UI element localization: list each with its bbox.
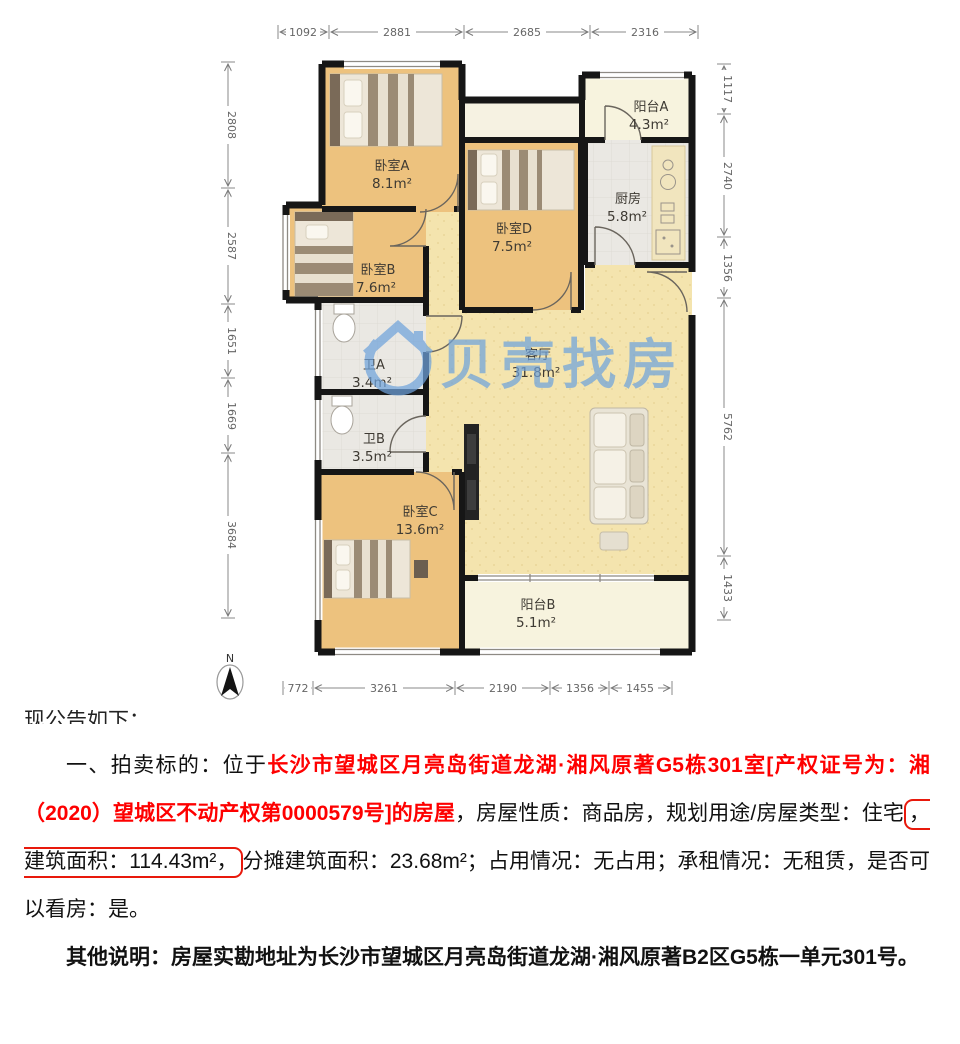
floorplan-image: 卧室A 8.1m² 卧室B 7.6m² 卧室C 13.6m² 卧室D 7.5m²… bbox=[0, 0, 960, 706]
toilet-bath-b bbox=[331, 396, 353, 434]
window-bedroom-c-left bbox=[314, 520, 323, 620]
p1-lead: 一、拍卖标的：位于 bbox=[66, 754, 267, 777]
window-bath-b bbox=[314, 400, 323, 460]
beike-watermark-text: 贝壳找房 bbox=[440, 333, 684, 396]
tv-unit bbox=[464, 424, 479, 520]
clipped-text-line: 现公告如下： bbox=[24, 710, 960, 724]
label-balcony-b: 阳台B bbox=[521, 598, 556, 613]
area-bedroom-a: 8.1m² bbox=[372, 176, 412, 192]
area-bedroom-c: 13.6m² bbox=[396, 522, 445, 538]
dim-bottom-1: 3261 bbox=[370, 682, 398, 695]
window-bedroom-a bbox=[344, 59, 440, 69]
dim-bottom-3: 1356 bbox=[566, 682, 594, 695]
dim-top-3: 2316 bbox=[631, 26, 659, 39]
window-balcony-b-bottom bbox=[480, 648, 660, 657]
bed-b bbox=[295, 212, 353, 296]
label-bath-b: 卫B bbox=[363, 432, 385, 447]
dim-right-2: 1356 bbox=[721, 254, 734, 282]
clipped-text: 现公告如下： bbox=[24, 710, 150, 724]
kitchen-counter bbox=[652, 146, 685, 260]
dim-right-0: 1117 bbox=[721, 75, 734, 103]
label-bedroom-c: 卧室C bbox=[402, 504, 437, 520]
north-arrow: N bbox=[217, 652, 243, 699]
dim-left-3: 1669 bbox=[225, 402, 238, 430]
window-bath-a bbox=[314, 310, 323, 376]
area-bedroom-d: 7.5m² bbox=[492, 239, 532, 255]
auction-description: 一、拍卖标的：位于长沙市望城区月亮岛街道龙湖·湘风原著G5栋301室[产权证号为… bbox=[0, 742, 960, 982]
dim-bottom-2: 2190 bbox=[489, 682, 517, 695]
label-kitchen: 厨房 bbox=[615, 191, 641, 207]
dim-top-1: 2881 bbox=[383, 26, 411, 39]
label-balcony-a: 阳台A bbox=[634, 100, 669, 115]
north-label: N bbox=[226, 652, 234, 665]
dim-right-4: 1433 bbox=[721, 574, 734, 602]
dim-bottom-0: 772 bbox=[288, 682, 309, 695]
label-bedroom-d: 卧室D bbox=[496, 221, 532, 237]
window-balcony-a bbox=[600, 71, 684, 80]
area-balcony-b: 5.1m² bbox=[516, 615, 556, 631]
equipment-platform-floor bbox=[462, 100, 582, 140]
window-bedroom-b-bay bbox=[281, 215, 290, 290]
bed-a bbox=[330, 74, 442, 146]
toilet-bath-a bbox=[333, 304, 355, 342]
dim-top-0: 1092 bbox=[289, 26, 317, 39]
auction-paragraph-2: 其他说明：房屋实勘地址为长沙市望城区月亮岛街道龙湖·湘风原著B2区G5栋一单元3… bbox=[24, 934, 930, 982]
dim-right-1: 2740 bbox=[721, 162, 734, 190]
label-bedroom-b: 卧室B bbox=[361, 262, 396, 278]
nightstand-c bbox=[414, 560, 428, 578]
area-balcony-a: 4.3m² bbox=[629, 117, 669, 133]
dim-left-1: 2587 bbox=[225, 232, 238, 260]
window-living-balcony-b bbox=[478, 574, 654, 582]
dim-right-3: 5762 bbox=[721, 413, 734, 441]
p1-mid: ，房屋性质：商品房，规划用途/房屋类型：住宅 bbox=[455, 802, 904, 825]
bed-d bbox=[468, 150, 574, 210]
side-table bbox=[600, 532, 628, 550]
floorplan-svg: 卧室A 8.1m² 卧室B 7.6m² 卧室C 13.6m² 卧室D 7.5m²… bbox=[0, 0, 960, 706]
auction-paragraph-1: 一、拍卖标的：位于长沙市望城区月亮岛街道龙湖·湘风原著G5栋301室[产权证号为… bbox=[24, 742, 930, 934]
room-balcony-b-floor bbox=[462, 578, 692, 652]
dim-bottom-4: 1455 bbox=[626, 682, 654, 695]
area-kitchen: 5.8m² bbox=[607, 209, 647, 225]
dim-left-4: 3684 bbox=[225, 521, 238, 549]
area-bedroom-b: 7.6m² bbox=[356, 280, 396, 296]
dim-left-0: 2808 bbox=[225, 111, 238, 139]
dim-top-2: 2685 bbox=[513, 26, 541, 39]
label-bedroom-a: 卧室A bbox=[375, 158, 410, 174]
window-bedroom-c-bottom bbox=[335, 648, 440, 657]
area-bath-b: 3.5m² bbox=[352, 449, 392, 465]
dim-left-2: 1651 bbox=[225, 327, 238, 355]
